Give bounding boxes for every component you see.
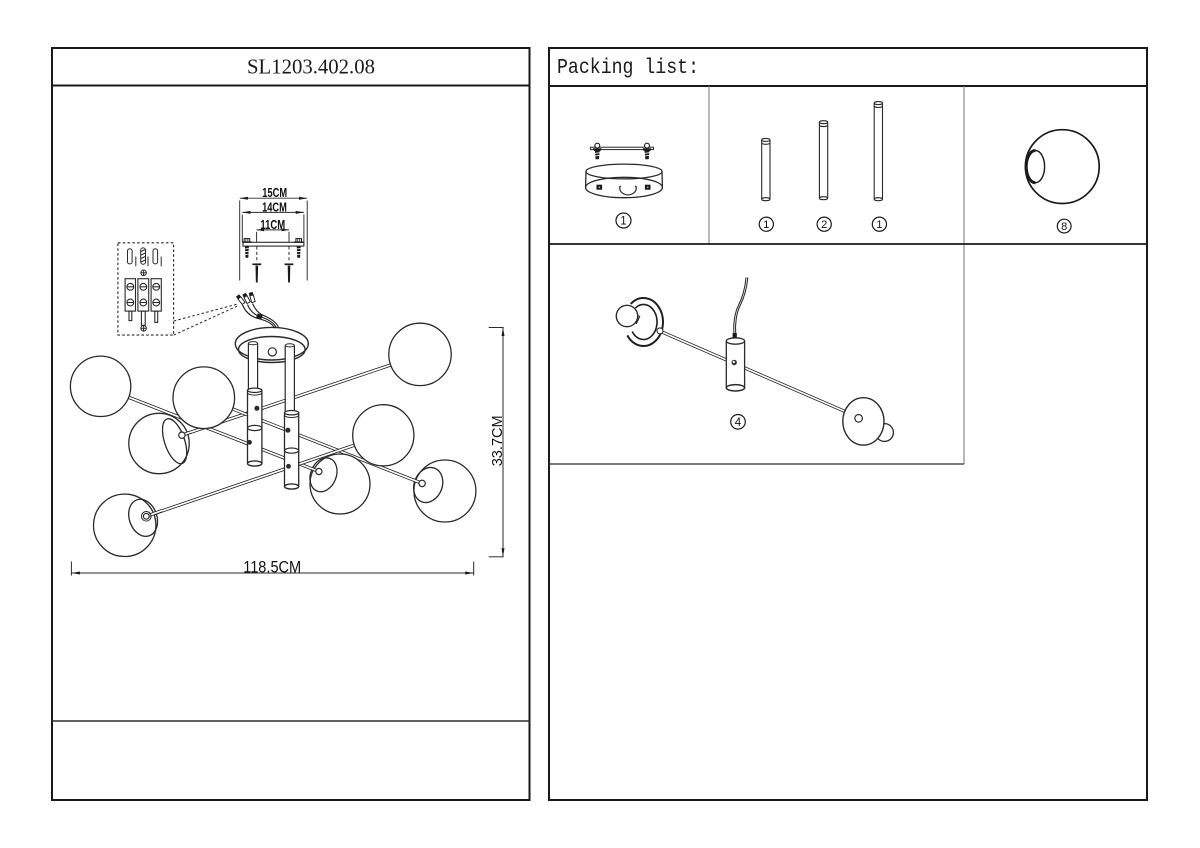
svg-text:Packing list:: Packing list: [557,57,699,80]
svg-text:1: 1 [763,219,769,231]
svg-text:1: 1 [876,219,882,231]
svg-text:33.7CM: 33.7CM [489,415,506,466]
svg-text:8: 8 [1061,221,1067,233]
svg-text:4: 4 [735,417,742,429]
svg-text:2: 2 [821,219,827,231]
svg-text:1: 1 [620,216,626,228]
svg-text:14CM: 14CM [262,200,287,215]
svg-text:118.5CM: 118.5CM [243,558,301,577]
svg-text:11CM: 11CM [260,217,285,232]
svg-text:15CM: 15CM [262,185,287,200]
svg-text:SL1203.402.08: SL1203.402.08 [247,55,375,79]
